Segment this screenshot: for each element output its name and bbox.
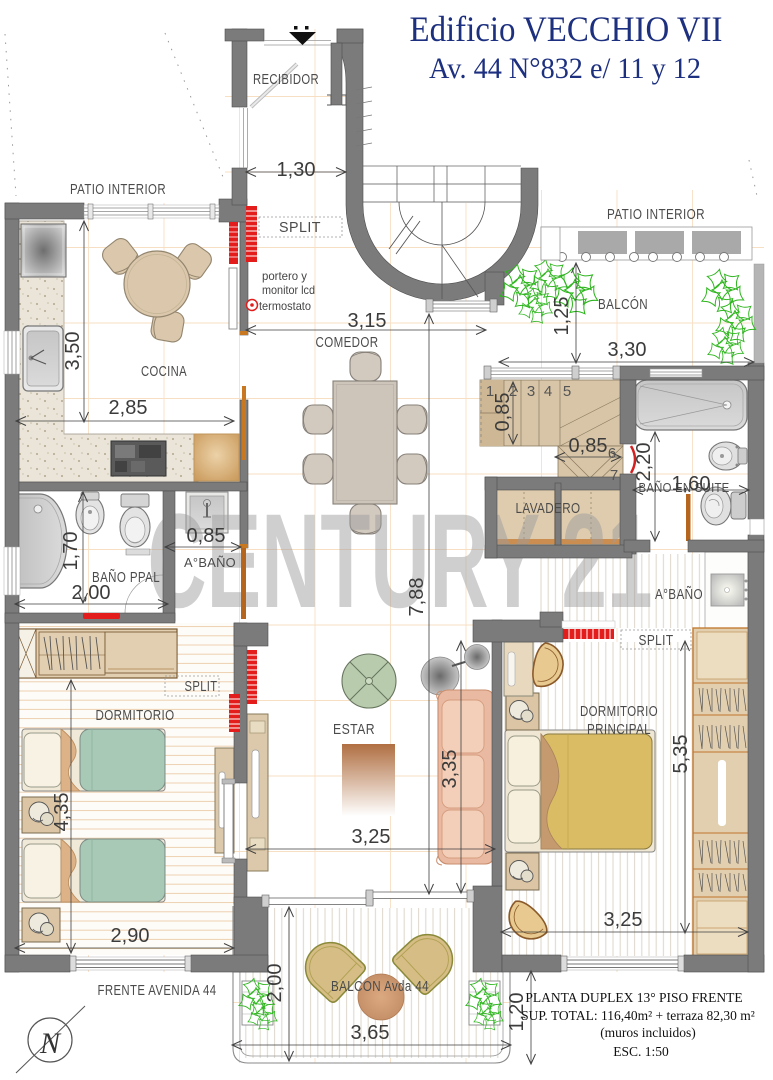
- svg-text:LAVADERO: LAVADERO: [516, 500, 581, 517]
- svg-text:4: 4: [544, 383, 552, 400]
- svg-text:A°BAÑO: A°BAÑO: [655, 586, 703, 603]
- svg-text:SUP. TOTAL: 116,40m² + terraza: SUP. TOTAL: 116,40m² + terraza 82,30 m²: [521, 1008, 755, 1023]
- svg-text:BALCON Avda 44: BALCON Avda 44: [331, 978, 429, 995]
- svg-text:BALCÓN: BALCÓN: [598, 296, 648, 313]
- svg-text:N: N: [39, 1027, 62, 1060]
- svg-text:SPLIT: SPLIT: [185, 678, 218, 695]
- svg-text:2,20: 2,20: [633, 443, 655, 482]
- svg-text:PATIO INTERIOR: PATIO INTERIOR: [70, 181, 166, 198]
- svg-text:0,85: 0,85: [187, 525, 226, 547]
- svg-text:5,35: 5,35: [670, 735, 692, 774]
- svg-text:COMEDOR: COMEDOR: [316, 334, 379, 351]
- svg-text:DORMITORIO: DORMITORIO: [580, 703, 658, 720]
- svg-text:RECIBIDOR: RECIBIDOR: [253, 71, 319, 88]
- svg-text:7: 7: [610, 467, 618, 484]
- svg-text:3,25: 3,25: [604, 909, 643, 931]
- svg-text:(muros incluidos): (muros incluidos): [600, 1025, 696, 1040]
- svg-text:COCINA: COCINA: [141, 363, 187, 380]
- svg-text:2: 2: [509, 383, 517, 400]
- svg-text:3: 3: [527, 383, 535, 400]
- svg-text:FRENTE AVENIDA 44: FRENTE AVENIDA 44: [98, 982, 217, 999]
- svg-text:0,85: 0,85: [569, 435, 608, 457]
- svg-text:1: 1: [486, 383, 494, 400]
- svg-text:SPLIT: SPLIT: [279, 219, 321, 236]
- svg-text:3,30: 3,30: [608, 339, 647, 361]
- svg-text:3,25: 3,25: [352, 826, 391, 848]
- svg-text:Av. 44 N°832 e/ 11 y 12: Av. 44 N°832 e/ 11 y 12: [429, 52, 701, 85]
- svg-text:ESC. 1:50: ESC. 1:50: [613, 1044, 669, 1059]
- svg-text:3,50: 3,50: [62, 332, 84, 371]
- svg-text:1,30: 1,30: [277, 159, 316, 181]
- svg-text:2,00: 2,00: [264, 964, 286, 1003]
- svg-text:4,35: 4,35: [51, 793, 73, 832]
- svg-text:DORMITORIO: DORMITORIO: [96, 707, 175, 724]
- svg-text:2,00: 2,00: [72, 582, 111, 604]
- svg-text:ESTAR: ESTAR: [333, 721, 375, 738]
- svg-text:6: 6: [608, 445, 616, 462]
- svg-text:2,85: 2,85: [109, 397, 148, 419]
- svg-text:Edificio VECCHIO VII: Edificio VECCHIO VII: [410, 9, 723, 49]
- svg-text:1,70: 1,70: [60, 532, 82, 571]
- svg-text:2,90: 2,90: [111, 925, 150, 947]
- svg-text:5: 5: [563, 383, 571, 400]
- svg-text:3,35: 3,35: [439, 750, 461, 789]
- svg-text:portero y: portero y: [262, 269, 307, 283]
- svg-text:3,65: 3,65: [351, 1022, 390, 1044]
- svg-text:A°BAÑO: A°BAÑO: [184, 555, 236, 570]
- svg-text:PATIO INTERIOR: PATIO INTERIOR: [607, 206, 705, 223]
- svg-text:PLANTA DUPLEX 13° PISO FRENTE: PLANTA DUPLEX 13° PISO FRENTE: [525, 990, 742, 1005]
- svg-text:monitor lcd: monitor lcd: [262, 283, 315, 297]
- svg-text:SPLIT: SPLIT: [639, 632, 674, 649]
- svg-text:1,60: 1,60: [672, 473, 711, 495]
- svg-text:3,15: 3,15: [348, 310, 387, 332]
- svg-text:termostato: termostato: [259, 299, 311, 313]
- svg-text:PRINCIPAL: PRINCIPAL: [587, 721, 651, 738]
- svg-text:1,25: 1,25: [551, 297, 573, 336]
- svg-text:7,88: 7,88: [406, 578, 428, 617]
